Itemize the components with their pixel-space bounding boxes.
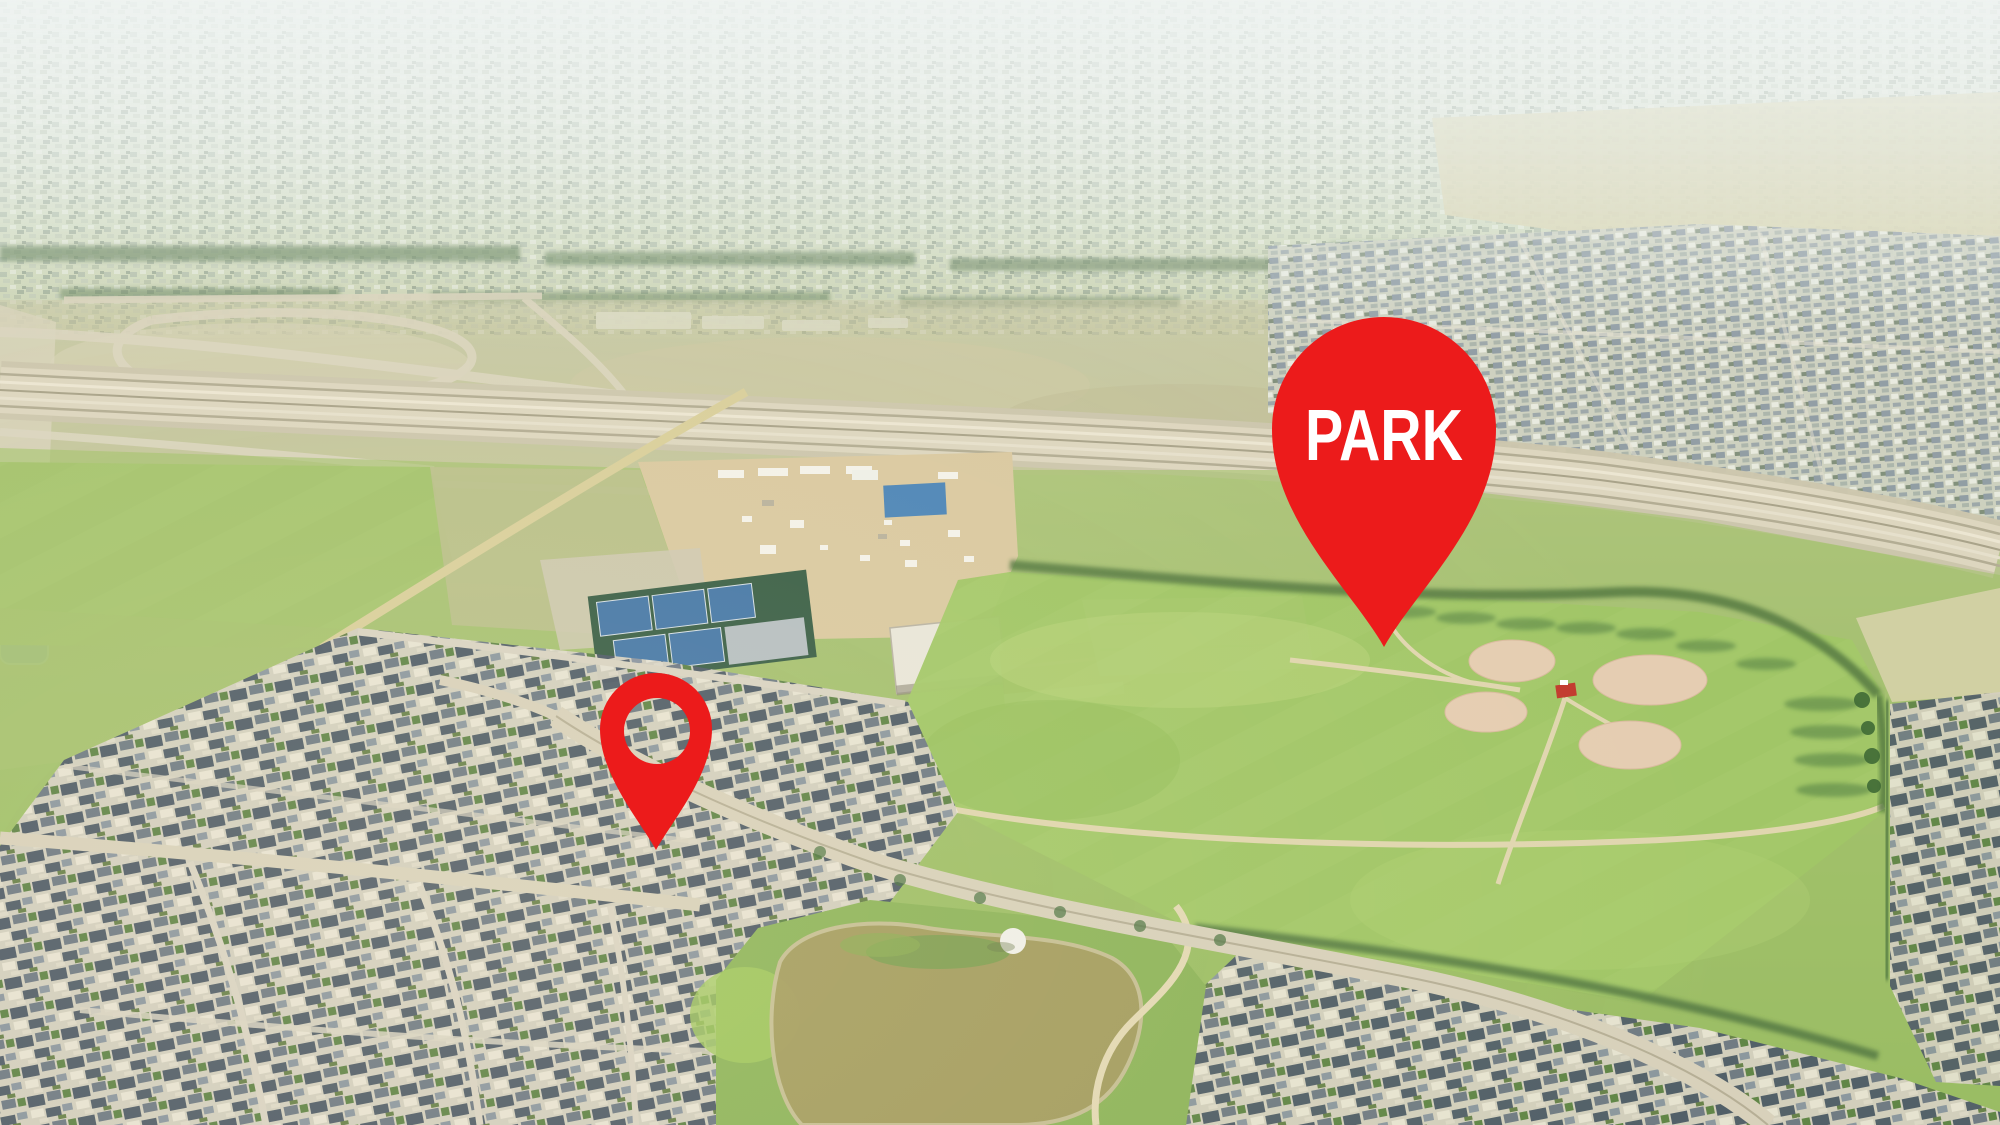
- aerial-photo: PARK: [0, 0, 2000, 1125]
- sunlight-cast: [0, 0, 2000, 1125]
- aerial-scene: [0, 0, 2000, 1125]
- park-marker-label: PARK: [1305, 396, 1463, 476]
